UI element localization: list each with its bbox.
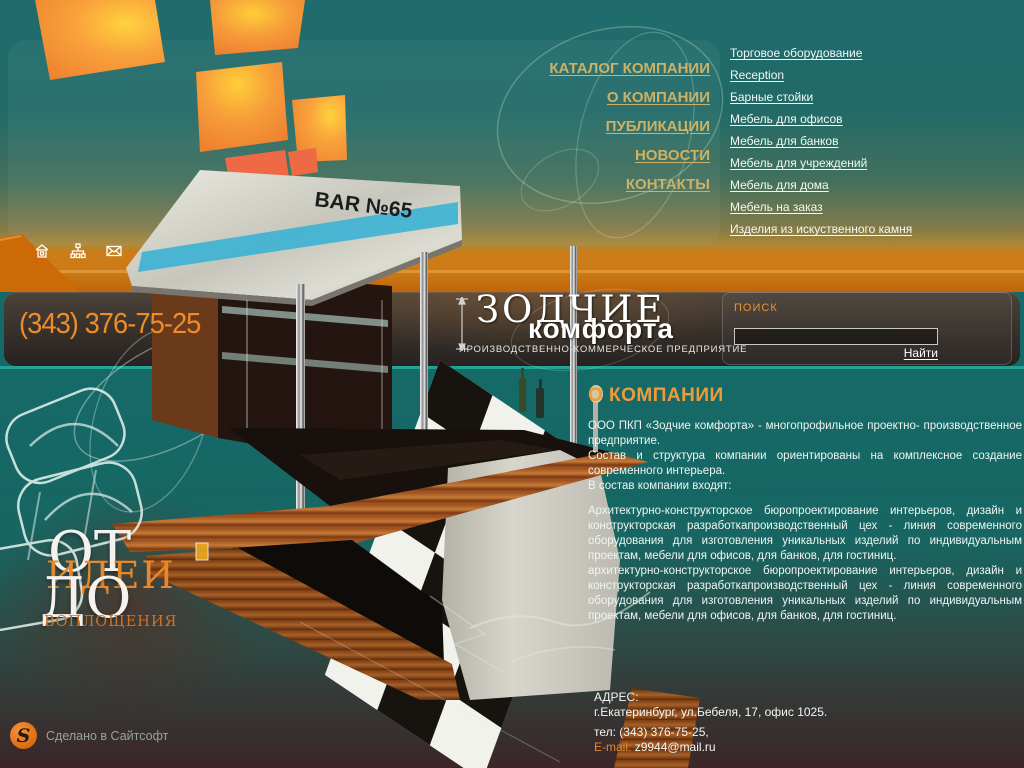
email-line: E-mail: z9944@mail.ru <box>594 740 827 755</box>
address-block: АДРЕС: г.Екатеринбург, ул.Бебеля, 17, оф… <box>594 690 827 755</box>
catalog-link-bar-counters[interactable]: Барные стойки <box>730 90 813 104</box>
teal-divider-line <box>0 366 1024 369</box>
nav-link-contacts[interactable]: КОНТАКТЫ <box>626 176 710 193</box>
about-paragraph: Состав и структура компании ориентирован… <box>588 449 1022 479</box>
page-title: О КОМПАНИИ <box>588 385 1022 407</box>
search-submit-link[interactable]: Найти <box>904 346 938 360</box>
about-paragraph: архитектурно-конструкторское бюропроекти… <box>588 564 1022 624</box>
catalog-item[interactable]: Изделия из искуственного камня <box>730 220 912 232</box>
about-paragraph: В состав компании входят: <box>588 479 1022 494</box>
catalog-item[interactable]: Мебель для банков <box>730 132 912 144</box>
nav-item[interactable]: ПУБЛИКАЦИИ <box>549 118 710 136</box>
nav-item[interactable]: О КОМПАНИИ <box>549 89 710 107</box>
slogan-word-voploshcheniya: ВОПЛОЩЕНИЯ <box>44 614 177 630</box>
catalog-item[interactable]: Барные стойки <box>730 88 912 100</box>
search-input[interactable] <box>734 328 938 345</box>
catalog-link-office-furniture[interactable]: Мебель для офисов <box>730 112 843 126</box>
catalog-link-reception[interactable]: Reception <box>730 68 784 82</box>
catalog-link-custom-furniture[interactable]: Мебель на заказ <box>730 200 823 214</box>
about-paragraph: Архитектурно-конструкторское бюропроекти… <box>588 504 1022 564</box>
company-logo[interactable]: ЗОДЧИЕ комфорта ПРОИЗВОДСТВЕННО-КОММЕРЧЕ… <box>452 292 714 362</box>
phone-number: (343) 376-75-25 <box>19 308 200 341</box>
catalog-link-trade-equipment[interactable]: Торговое оборудование <box>730 46 862 60</box>
catalog-item[interactable]: Мебель на заказ <box>730 198 912 210</box>
phone-line: тел: (343) 376-75-25, <box>594 725 827 740</box>
catalog-item[interactable]: Мебель для учреждений <box>730 154 912 166</box>
search-panel: ПОИСК Найти <box>722 292 1012 365</box>
footer: S Сделано в Сайтсофт <box>10 722 168 749</box>
slogan: ОТ ИДЕИ ДО ВОПЛОЩЕНИЯ <box>40 528 210 653</box>
home-icon[interactable] <box>34 243 50 259</box>
catalog-item[interactable]: Торговое оборудование <box>730 44 912 56</box>
email-label: E-mail: <box>594 740 631 754</box>
nav-link-about[interactable]: О КОМПАНИИ <box>607 89 710 106</box>
logo-tagline: ПРОИЗВОДСТВЕННО-КОММЕРЧЕСКОЕ ПРЕДПРИЯТИЕ <box>459 344 747 355</box>
catalog-link-bank-furniture[interactable]: Мебель для банков <box>730 134 838 148</box>
address-heading: АДРЕС: <box>594 690 827 705</box>
footer-credit[interactable]: Сделано в Сайтсофт <box>46 729 168 743</box>
catalog-link-home-furniture[interactable]: Мебель для дома <box>730 178 829 192</box>
nav-link-catalog[interactable]: КАТАЛОГ КОМПАНИИ <box>549 60 710 77</box>
nav-item[interactable]: КОНТАКТЫ <box>549 176 710 194</box>
catalog-link-institution-furniture[interactable]: Мебель для учреждений <box>730 156 867 170</box>
catalog-item[interactable]: Reception <box>730 66 912 78</box>
about-section: О КОМПАНИИ ООО ПКП «Зодчие комфорта» - м… <box>588 385 1022 624</box>
search-label: ПОИСК <box>734 302 778 314</box>
catalog-item[interactable]: Мебель для дома <box>730 176 912 188</box>
orange-band-highlight <box>0 270 1024 273</box>
nav-item[interactable]: НОВОСТИ <box>549 147 710 165</box>
mail-icon[interactable] <box>106 243 122 259</box>
catalog-item[interactable]: Мебель для офисов <box>730 110 912 122</box>
sitemap-icon[interactable] <box>70 243 86 259</box>
address-line: г.Екатеринбург, ул.Бебеля, 17, офис 1025… <box>594 705 827 720</box>
catalog-navigation: Торговое оборудование Reception Барные с… <box>730 44 912 242</box>
sitesoft-logo[interactable]: S <box>10 722 37 749</box>
nav-item[interactable]: КАТАЛОГ КОМПАНИИ <box>549 60 710 78</box>
nav-link-publications[interactable]: ПУБЛИКАЦИИ <box>606 118 710 135</box>
email-value[interactable]: z9944@mail.ru <box>635 740 716 754</box>
page: BAR №65 <box>0 0 1024 768</box>
logo-subtitle: комфорта <box>528 313 674 345</box>
main-navigation: КАТАЛОГ КОМПАНИИ О КОМПАНИИ ПУБЛИКАЦИИ Н… <box>549 60 710 205</box>
about-paragraph: ООО ПКП «Зодчие комфорта» - многопрофиль… <box>588 419 1022 449</box>
quick-icons <box>34 243 122 259</box>
nav-link-news[interactable]: НОВОСТИ <box>635 147 710 164</box>
catalog-link-artificial-stone[interactable]: Изделия из искуственного камня <box>730 222 912 236</box>
